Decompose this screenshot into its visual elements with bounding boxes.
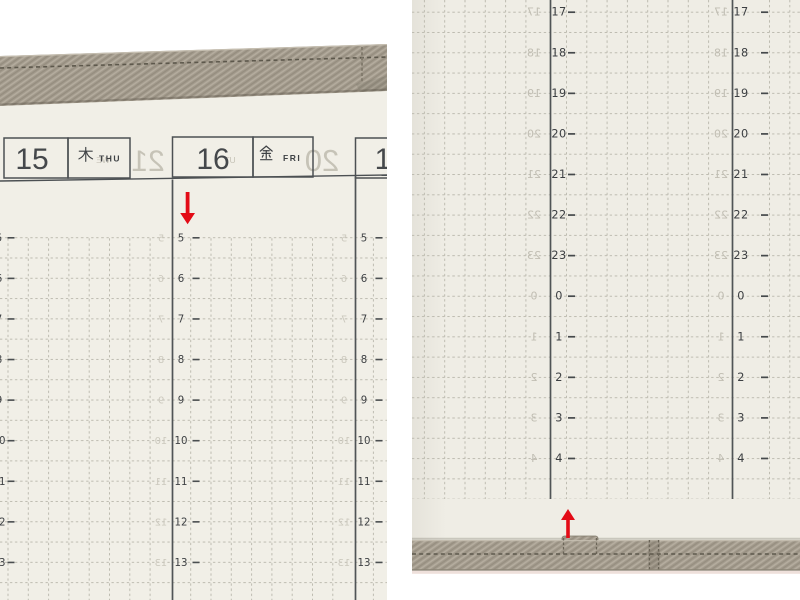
hour-label: 12 — [175, 517, 188, 528]
ghost-hour-showthrough: 18 — [527, 46, 541, 59]
hour-label: 3 — [555, 411, 563, 424]
hour-label: 23 — [733, 249, 748, 262]
left-photo-panel: 21 20 WE UT 15 16 1 THU — [0, 0, 387, 600]
hour-label: 0 — [737, 290, 745, 303]
hour-label: 13 — [175, 558, 188, 569]
cover-lining-edge — [412, 571, 800, 574]
ghost-hour-showthrough: 22 — [527, 209, 541, 222]
ghost-hour-showthrough: 2 — [718, 371, 725, 384]
ghost-hour-showthrough: 7 — [158, 314, 164, 325]
hour-label: 9 — [178, 396, 184, 407]
hour-label: 8 — [178, 355, 184, 366]
ghost-hour-showthrough: 13 — [338, 558, 351, 569]
hour-label: 7 — [178, 314, 184, 325]
hour-label: 23 — [551, 249, 566, 262]
hour-label: 3 — [737, 411, 745, 424]
hour-label: 7 — [361, 314, 367, 325]
ghost-hour-showthrough: 3 — [718, 411, 725, 424]
hour-label: 9 — [0, 396, 2, 407]
ghost-hour-showthrough: 21 — [527, 168, 541, 181]
ghost-hour-showthrough: 20 — [527, 127, 541, 140]
ghost-hour-showthrough: 1 — [531, 330, 538, 343]
svg-text:20: 20 — [305, 143, 339, 178]
hour-label: 8 — [361, 355, 367, 366]
left-photo: 21 20 WE UT 15 16 1 THU — [0, 0, 387, 600]
ghost-hour-showthrough: 23 — [714, 249, 728, 262]
hour-label: 9 — [361, 396, 367, 407]
date-number: 15 — [15, 143, 48, 176]
hour-label: 4 — [555, 452, 563, 465]
hour-label: 17 — [551, 6, 566, 19]
ghost-hour-showthrough: 8 — [341, 355, 347, 366]
hour-label: 5 — [0, 233, 2, 244]
ghost-hour-showthrough: 6 — [341, 274, 347, 285]
hour-label: 21 — [551, 168, 566, 181]
ghost-hour-showthrough: 20 — [714, 127, 728, 140]
ghost-hour-showthrough: 6 — [158, 274, 164, 285]
hour-label: 1 — [737, 330, 745, 343]
hour-label: 2 — [737, 371, 745, 384]
hour-label: 20 — [551, 127, 566, 140]
hour-label: 5 — [361, 233, 367, 244]
hour-label: 6 — [0, 274, 2, 285]
ghost-hour-showthrough: 19 — [714, 87, 728, 100]
ghost-hour-showthrough: 13 — [155, 558, 168, 569]
hour-label: 11 — [358, 477, 371, 488]
ghost-hour-showthrough: 1 — [718, 330, 725, 343]
hour-label: 6 — [178, 274, 184, 285]
hour-label: 17 — [733, 6, 748, 19]
ghost-hour-showthrough: 4 — [531, 452, 538, 465]
hour-label: 6 — [361, 274, 367, 285]
ghost-hour-showthrough: 18 — [714, 46, 728, 59]
hour-label: 21 — [733, 168, 748, 181]
ghost-hour-showthrough: 2 — [531, 371, 538, 384]
hour-label: 10 — [0, 436, 5, 447]
hour-label: 1 — [555, 330, 563, 343]
hour-label: 2 — [555, 371, 563, 384]
hour-label: 22 — [733, 209, 748, 222]
ghost-hour-showthrough: 4 — [718, 452, 725, 465]
ghost-hour-showthrough: 12 — [338, 517, 351, 528]
ghost-hour-showthrough: 10 — [338, 436, 351, 447]
hour-label: 11 — [175, 477, 188, 488]
date-number: 16 — [196, 143, 229, 176]
ghost-hour-showthrough: 17 — [527, 6, 541, 19]
weekday-label: FRI — [283, 153, 301, 163]
hour-label: 18 — [551, 46, 566, 59]
hour-label: 8 — [0, 355, 2, 366]
hour-label: 19 — [733, 87, 748, 100]
ghost-hour-showthrough: 17 — [714, 6, 728, 19]
ghost-hour-showthrough: 21 — [714, 168, 728, 181]
svg-text:21: 21 — [131, 145, 164, 178]
ghost-hour-showthrough: 23 — [527, 249, 541, 262]
hour-label: 19 — [551, 87, 566, 100]
ghost-hour-showthrough: 7 — [341, 314, 347, 325]
right-photo: 1717171718181818191919192020202021212121… — [412, 0, 800, 600]
hour-label: 22 — [551, 209, 566, 222]
ghost-hour-showthrough: 3 — [531, 411, 538, 424]
photo-collage: 21 20 WE UT 15 16 1 THU — [0, 0, 800, 600]
ghost-hour-showthrough: 0 — [718, 290, 725, 303]
hour-label: 20 — [733, 127, 748, 140]
ghost-hour-showthrough: 8 — [158, 355, 164, 366]
ghost-hour-showthrough: 22 — [714, 209, 728, 222]
hour-label: 7 — [0, 314, 2, 325]
date-number-partial: 1 — [375, 143, 387, 176]
weekday-label: THU — [99, 154, 121, 164]
ghost-hour-showthrough: 19 — [527, 87, 541, 100]
hour-label: 10 — [358, 436, 371, 447]
hour-label: 4 — [737, 452, 745, 465]
ghost-hour-showthrough: 5 — [341, 233, 347, 244]
fabric-cover-bottom — [412, 536, 800, 574]
right-photo-panel: 1717171718181818191919192020202021212121… — [412, 0, 800, 600]
hour-label: 12 — [358, 517, 371, 528]
ghost-hour-showthrough: 0 — [531, 290, 538, 303]
ghost-hour-showthrough: 12 — [155, 517, 168, 528]
ghost-hour-showthrough: 10 — [155, 436, 168, 447]
ghost-hour-showthrough: 11 — [338, 477, 351, 488]
hour-label: 13 — [0, 558, 5, 569]
hour-label: 5 — [178, 233, 184, 244]
ghost-hour-showthrough: 11 — [155, 477, 168, 488]
ghost-hour-showthrough: 5 — [158, 233, 164, 244]
grid-dotted — [0, 237, 387, 600]
hour-label: 12 — [0, 517, 5, 528]
ghost-hour-showthrough: 9 — [158, 396, 164, 407]
hour-label: 10 — [175, 436, 188, 447]
hour-label: 0 — [555, 290, 563, 303]
hour-label: 11 — [0, 477, 5, 488]
ghost-hour-showthrough: 9 — [341, 396, 347, 407]
hour-label: 18 — [733, 46, 748, 59]
hour-label: 13 — [358, 558, 371, 569]
